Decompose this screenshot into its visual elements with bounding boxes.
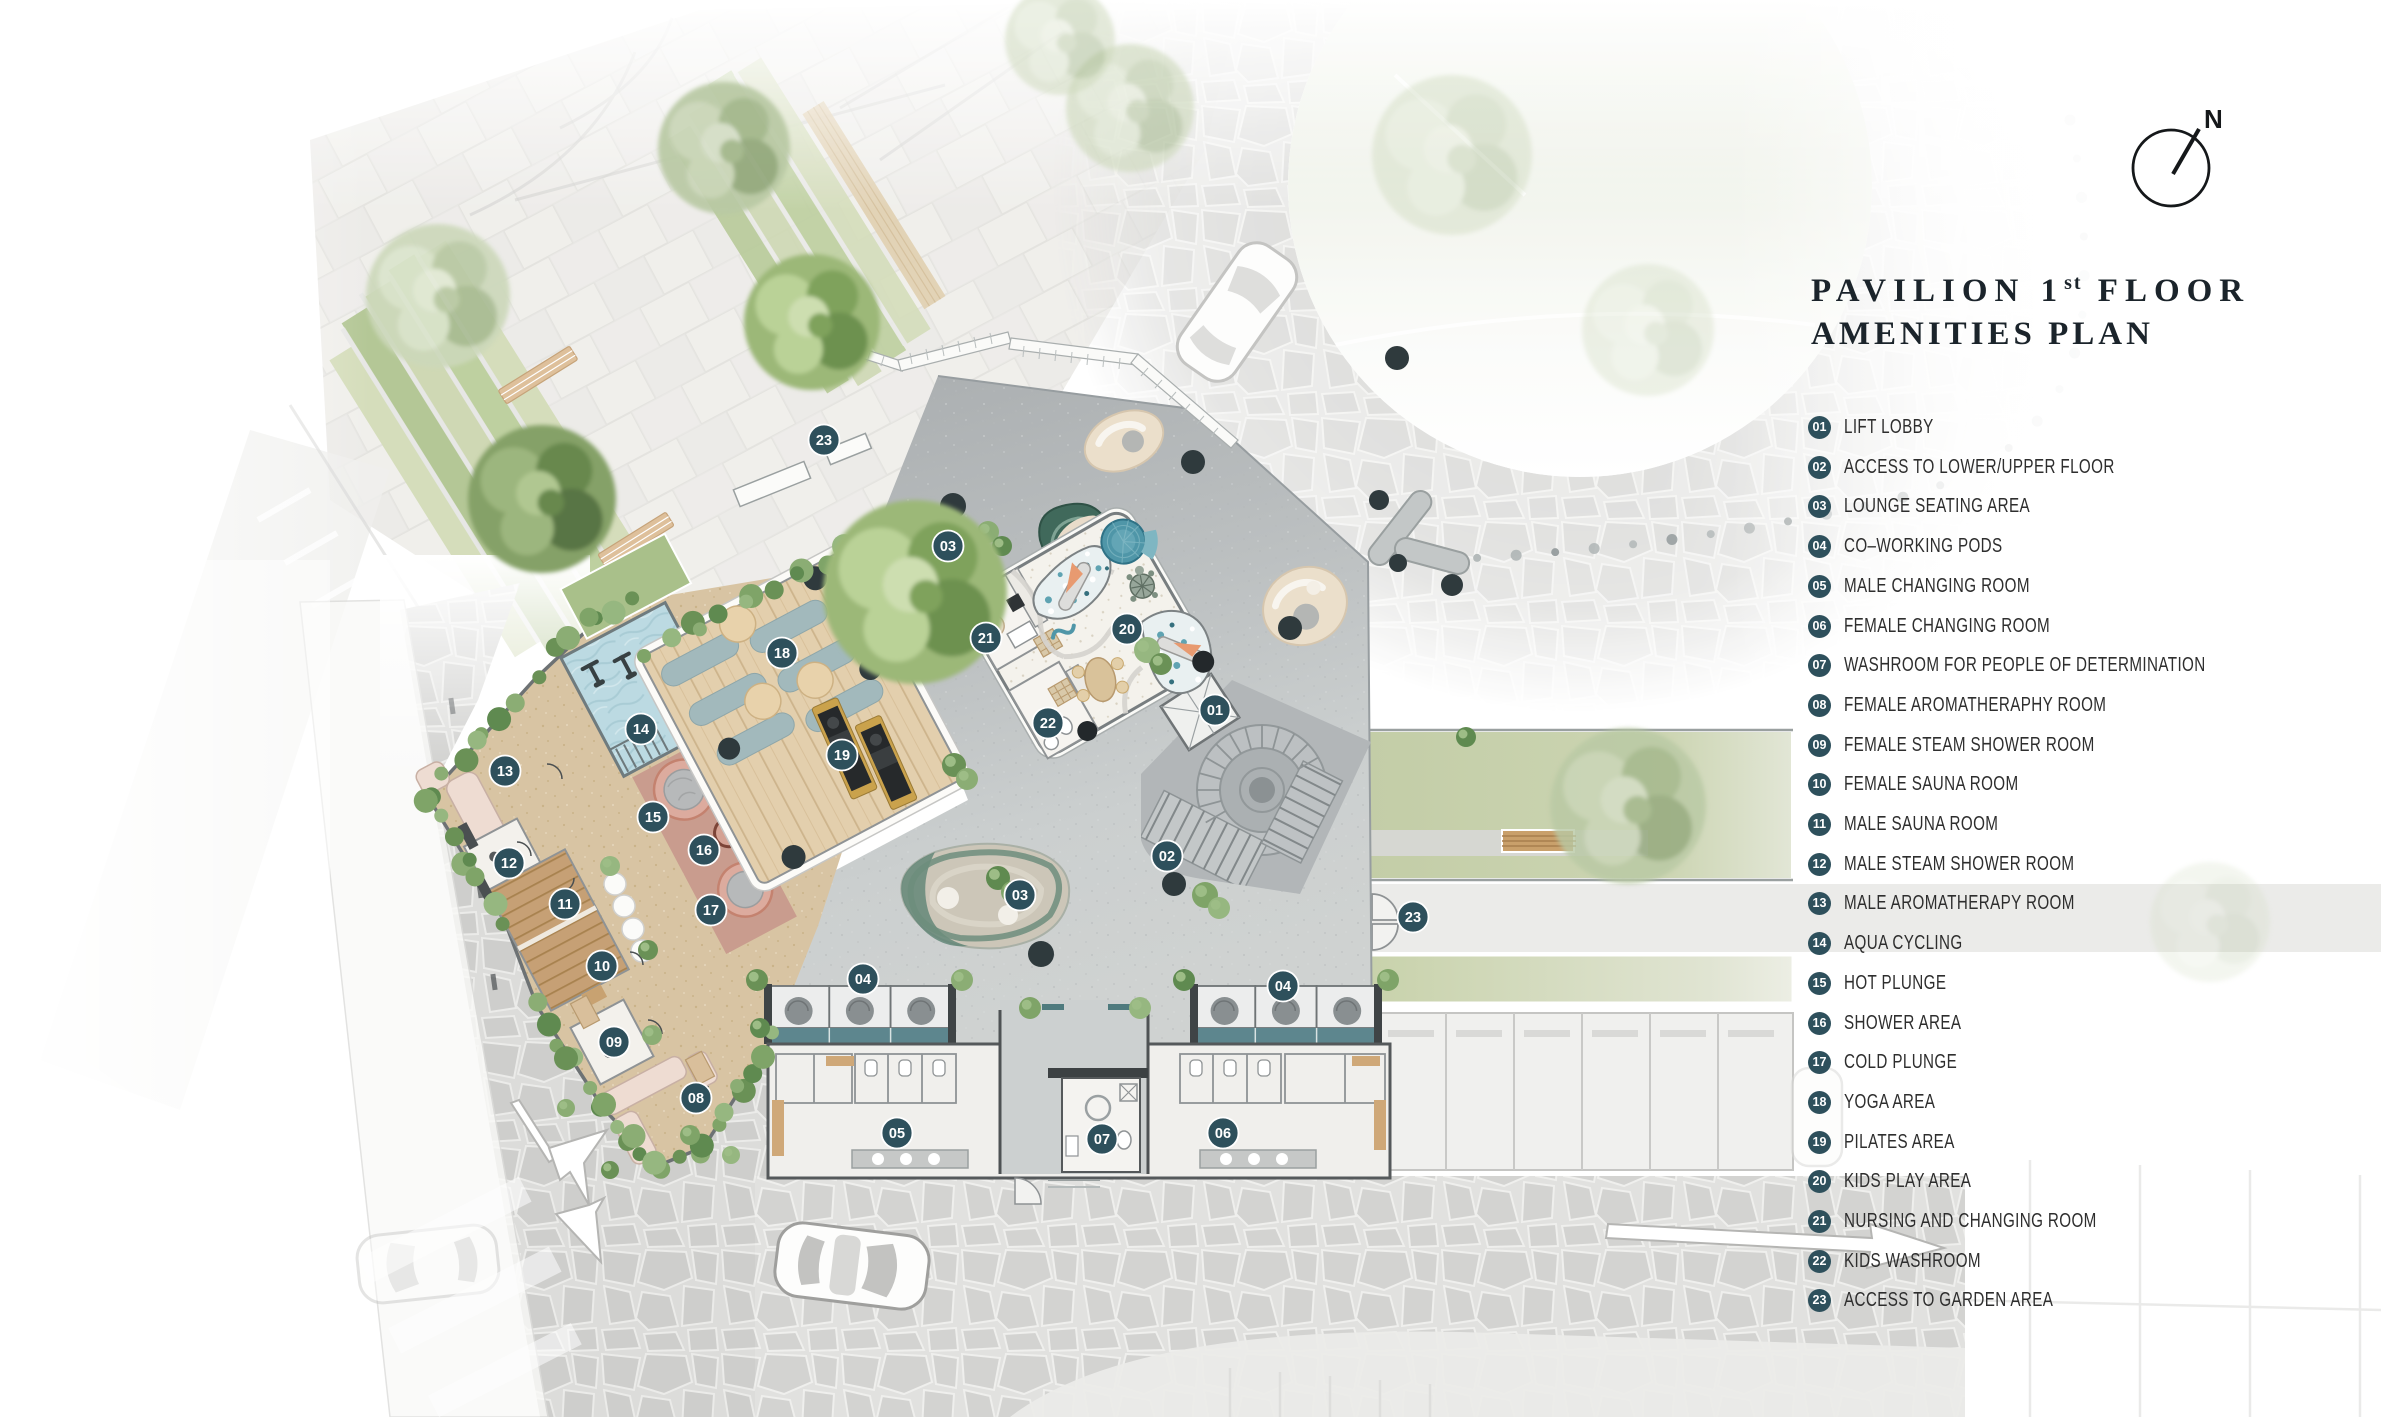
svg-text:06: 06 xyxy=(1215,1126,1231,1142)
svg-text:23: 23 xyxy=(1405,910,1421,926)
svg-text:11: 11 xyxy=(557,897,572,913)
svg-text:09: 09 xyxy=(606,1035,622,1051)
svg-text:15: 15 xyxy=(645,810,661,826)
svg-text:19: 19 xyxy=(834,748,850,764)
svg-text:14: 14 xyxy=(633,722,649,738)
svg-text:23: 23 xyxy=(816,433,832,449)
svg-text:20: 20 xyxy=(1119,622,1135,638)
svg-text:18: 18 xyxy=(774,646,790,662)
svg-text:22: 22 xyxy=(1040,716,1056,732)
svg-text:01: 01 xyxy=(1207,703,1223,719)
svg-text:03: 03 xyxy=(1012,888,1028,904)
svg-text:04: 04 xyxy=(1275,979,1291,995)
svg-text:04: 04 xyxy=(855,972,871,988)
svg-text:N: N xyxy=(2204,104,2223,134)
svg-text:03: 03 xyxy=(940,539,956,555)
svg-text:13: 13 xyxy=(497,764,513,780)
svg-text:12: 12 xyxy=(501,856,517,872)
svg-text:02: 02 xyxy=(1159,849,1175,865)
svg-text:17: 17 xyxy=(703,903,719,919)
svg-text:10: 10 xyxy=(594,959,610,975)
svg-text:21: 21 xyxy=(978,631,994,647)
svg-text:07: 07 xyxy=(1094,1132,1110,1148)
svg-text:16: 16 xyxy=(696,843,712,859)
svg-text:05: 05 xyxy=(889,1126,905,1142)
svg-text:08: 08 xyxy=(688,1091,704,1107)
